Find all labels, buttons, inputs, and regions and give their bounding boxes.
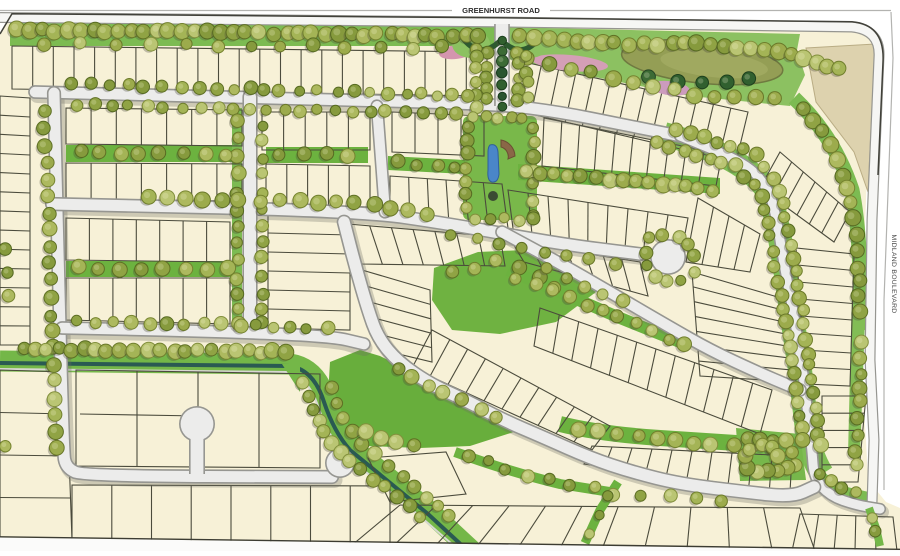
svg-text:GREENHURST ROAD: GREENHURST ROAD	[462, 6, 540, 15]
svg-text:MIDLAND BOULEVARD: MIDLAND BOULEVARD	[890, 235, 897, 314]
